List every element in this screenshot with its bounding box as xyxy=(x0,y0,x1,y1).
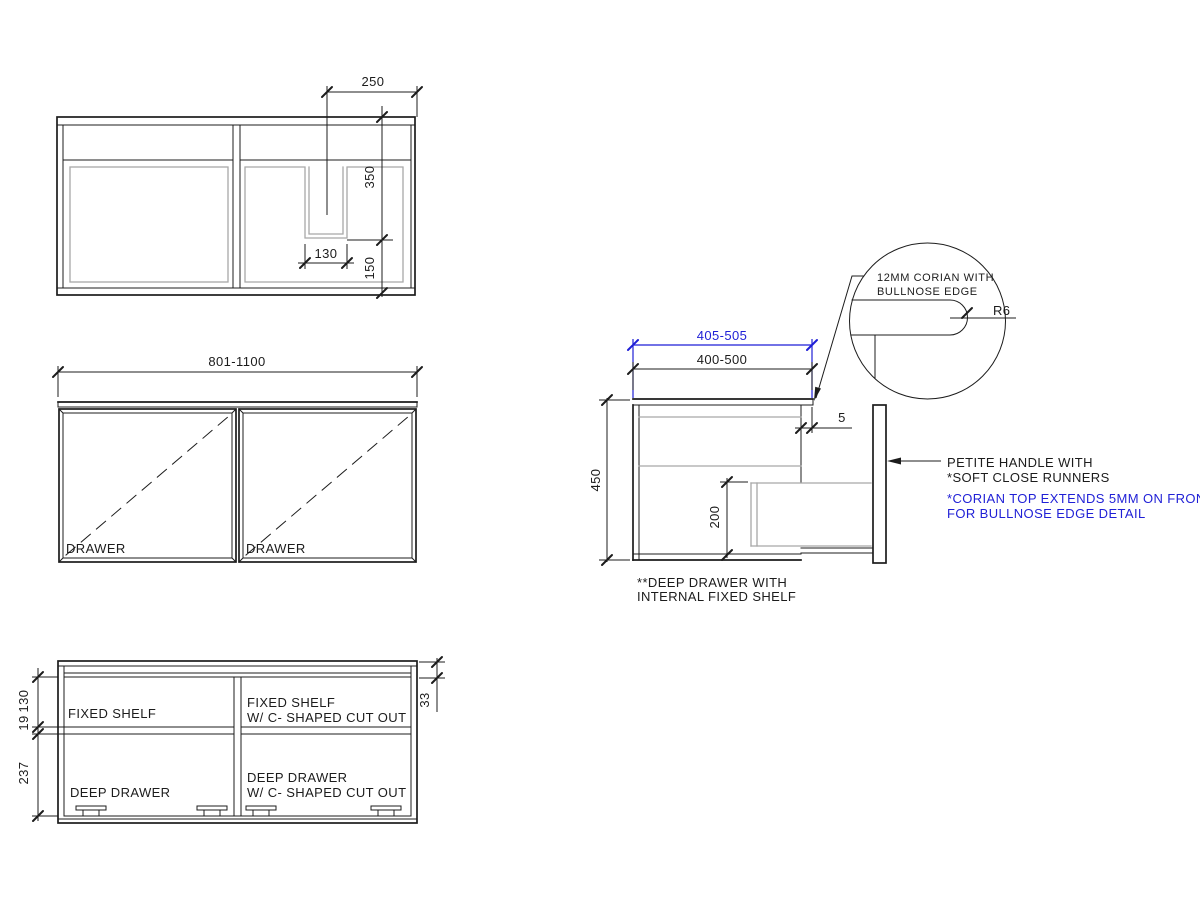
corian-note-line1: *CORIAN TOP EXTENDS 5MM ON FRONT xyxy=(947,491,1200,506)
internal-section: FIXED SHELF FIXED SHELF W/ C- SHAPED CUT… xyxy=(16,657,445,823)
side-dim-400-500-text: 400-500 xyxy=(697,352,748,367)
section-dim-237-text: 237 xyxy=(16,762,31,785)
label-fixed-shelf: FIXED SHELF xyxy=(68,706,156,721)
plan-dim-130-text: 130 xyxy=(315,246,338,261)
plan-dim-250: 250 xyxy=(322,74,422,215)
side-footnote: **DEEP DRAWER WITH INTERNAL FIXED SHELF xyxy=(637,575,796,604)
section-dim-19-text: 19 xyxy=(16,715,31,730)
front-benchtop xyxy=(58,402,417,407)
detail-leader xyxy=(814,276,864,401)
side-dim-405-505-text: 405-505 xyxy=(697,328,748,343)
detail-radius-text: R6 xyxy=(993,303,1010,318)
side-dim-450-text: 450 xyxy=(588,469,603,492)
label-deep-drawer-cutout-1: DEEP DRAWER xyxy=(247,770,347,785)
plan-dim-130: 130 xyxy=(298,244,354,269)
side-dim-carcass: 400-500 xyxy=(628,352,817,390)
side-dim-200-text: 200 xyxy=(707,506,722,529)
label-deep-drawer: DEEP DRAWER xyxy=(70,785,170,800)
front-drawer-right: DRAWER xyxy=(239,409,416,562)
side-dim-overhang-5: 5 xyxy=(795,407,852,433)
plan-dim-350-text: 350 xyxy=(362,166,377,189)
runner-block xyxy=(371,806,401,816)
detail-notes: 12MM CORIAN WITH BULLNOSE EDGE xyxy=(877,272,994,298)
detail-note-line1: 12MM CORIAN WITH xyxy=(877,272,994,284)
section-labels: FIXED SHELF FIXED SHELF W/ C- SHAPED CUT… xyxy=(68,695,406,800)
label-fixed-shelf-cutout-2: W/ C- SHAPED CUT OUT xyxy=(247,710,406,725)
plan-view: 250 350 150 130 xyxy=(57,74,422,298)
section-dim-right-33: 33 xyxy=(417,657,445,712)
cad-drawing: 250 350 150 130 801-1100 xyxy=(0,0,1200,900)
front-drawer-left-label: DRAWER xyxy=(66,541,126,556)
front-drawer-right-label: DRAWER xyxy=(246,541,306,556)
bullnose-detail: R6 12MM CORIAN WITH BULLNOSE EDGE xyxy=(814,243,1016,401)
drawing-sheet: 250 350 150 130 801-1100 xyxy=(0,0,1200,900)
section-dims-left: 130 19 237 xyxy=(16,668,64,821)
plan-dim-150-text: 150 xyxy=(362,257,377,280)
detail-radius-dim: R6 xyxy=(950,303,1016,318)
detail-circle xyxy=(850,243,1006,399)
detail-slab xyxy=(851,300,968,378)
handle-note-line2: *SOFT CLOSE RUNNERS xyxy=(947,470,1110,485)
label-deep-drawer-cutout-2: W/ C- SHAPED CUT OUT xyxy=(247,785,406,800)
front-elevation: 801-1100 DRAWER DRAWER xyxy=(53,354,422,562)
front-dim-width: 801-1100 xyxy=(53,354,422,397)
handle-annotation: PETITE HANDLE WITH *SOFT CLOSE RUNNERS *… xyxy=(887,455,1200,521)
side-dim-height: 450 xyxy=(588,395,630,565)
section-dim-130-text: 130 xyxy=(16,690,31,713)
runner-block xyxy=(197,806,227,816)
section-dim-33-text: 33 xyxy=(417,692,432,707)
side-note-line2: INTERNAL FIXED SHELF xyxy=(637,589,796,604)
front-drawer-left: DRAWER xyxy=(59,409,236,562)
section-drawer-runners xyxy=(76,806,401,816)
section-shelves xyxy=(64,727,411,734)
side-carcass xyxy=(633,399,813,560)
side-dim-drawer-200: 200 xyxy=(707,477,748,560)
plan-dim-250-text: 250 xyxy=(362,74,385,89)
plan-dim-350-150: 350 150 xyxy=(347,106,393,298)
side-dim-5-text: 5 xyxy=(838,410,846,425)
plan-left-panel xyxy=(70,167,228,282)
detail-note-line2: BULLNOSE EDGE xyxy=(877,286,978,298)
corian-note-line2: FOR BULLNOSE EDGE DETAIL xyxy=(947,506,1146,521)
front-dim-width-text: 801-1100 xyxy=(208,354,265,369)
handle-note-line1: PETITE HANDLE WITH xyxy=(947,455,1093,470)
side-drawer-front-handle xyxy=(873,405,886,563)
side-section: 405-505 400-500 450 xyxy=(588,328,886,604)
runner-block xyxy=(246,806,276,816)
runner-block xyxy=(76,806,106,816)
label-fixed-shelf-cutout-1: FIXED SHELF xyxy=(247,695,335,710)
plan-right-panel-c-cutout xyxy=(245,167,403,282)
side-drawer-box xyxy=(751,483,873,553)
handle-arrow xyxy=(887,458,941,465)
side-note-line1: **DEEP DRAWER WITH xyxy=(637,575,787,590)
